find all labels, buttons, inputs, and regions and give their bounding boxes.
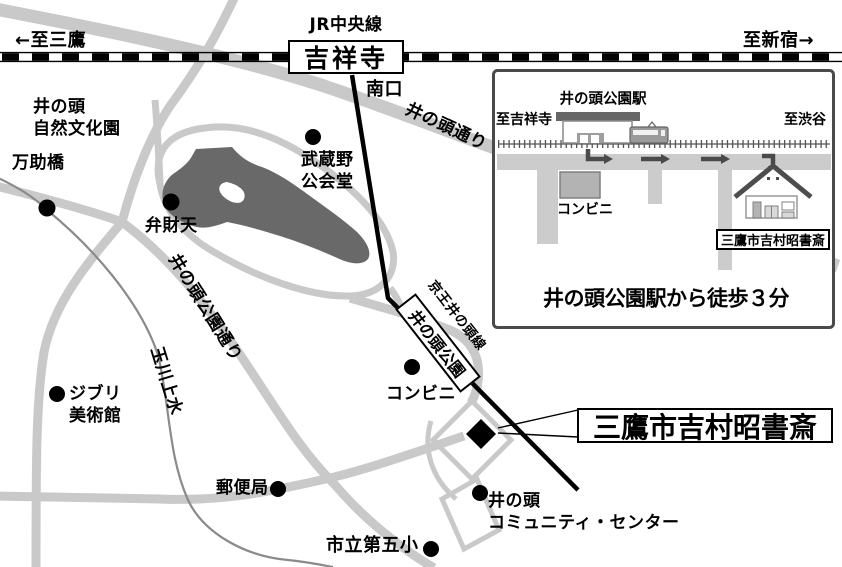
convenience-store-label: コンビニ [386, 383, 456, 405]
musashino-hall-label: 武蔵野 公会堂 [301, 149, 354, 193]
ghibli-museum-label: ジブリ 美術館 [69, 383, 122, 427]
inset-station-label: 井の頭公園駅 [560, 91, 647, 110]
to-shinjuku-label: 至新宿→ [743, 29, 814, 52]
elementary-school-label: 市立第五小 [326, 534, 419, 557]
elementary-school-dot [423, 541, 439, 557]
inset-convenience-store-block [560, 172, 600, 198]
inset-destination-label: 三鷹市吉村昭書斎 [721, 230, 825, 249]
map-canvas: JR中央線 吉祥寺 ←至三鷹 至新宿→ 南口 井の頭通り 井の頭 自然文化園 万… [0, 0, 842, 567]
inset-to-shibuya-label: 至渋谷 [784, 111, 826, 129]
destination-label: 三鷹市吉村昭書斎 [593, 406, 817, 446]
to-mitaka-label: ←至三鷹 [15, 29, 86, 52]
kichijoji-station-label: 吉祥寺 [304, 39, 388, 75]
destination-box: 三鷹市吉村昭書斎 [577, 408, 833, 443]
mansuke-bridge-label: 万助橋 [12, 152, 65, 174]
benzaiten-label: 弁財天 [145, 215, 198, 237]
inset-destination-box: 三鷹市吉村昭書斎 [716, 229, 830, 250]
inset-station-icon [556, 112, 640, 143]
community-center-dot [472, 485, 488, 501]
kichijoji-station-box: 吉祥寺 [288, 40, 404, 74]
convenience-store-dot [404, 359, 420, 375]
post-office-dot [270, 481, 286, 497]
inset-to-kichijoji-label: 至吉祥寺 [496, 111, 552, 129]
ghibli-museum-dot [49, 386, 65, 402]
mansuke-bridge-dot [39, 200, 56, 217]
jr-railway [0, 53, 842, 62]
south-exit-label: 南口 [366, 78, 403, 101]
post-office-label: 郵便局 [216, 477, 269, 499]
musashino-hall-dot [305, 129, 321, 145]
jr-line-label: JR中央線 [310, 14, 383, 36]
community-center-label: 井の頭 コミュニティ・センター [488, 490, 679, 534]
inset-convenience-store-label: コンビニ [557, 201, 613, 219]
nature-park-label: 井の頭 自然文化園 [33, 96, 121, 140]
map-graphics [0, 0, 842, 567]
inset-walk-note: 井の頭公園駅から徒歩３分 [543, 285, 789, 312]
benzaiten-dot [163, 194, 180, 211]
